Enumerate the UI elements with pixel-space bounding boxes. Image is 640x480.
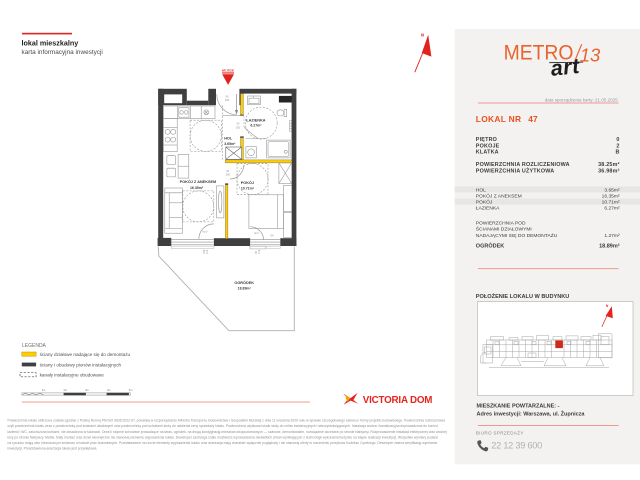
svg-text:kanały instalacyjne obudowane: kanały instalacyjne obudowane — [40, 373, 105, 378]
svg-text:LOKAL NR: LOKAL NR — [476, 114, 522, 124]
svg-text:POKÓJ Z ANEKSEM: POKÓJ Z ANEKSEM — [180, 179, 217, 184]
svg-text:6.27m²: 6.27m² — [250, 124, 262, 128]
svg-text:22 12 39 600: 22 12 39 600 — [491, 440, 542, 450]
svg-text:KLATKA: KLATKA — [476, 150, 499, 156]
svg-text:POWIERZCHNIA ROZLICZENIOWA: POWIERZCHNIA ROZLICZENIOWA — [476, 162, 570, 168]
svg-text:Powierzchnia lokalu obliczona: Powierzchnia lokalu obliczona została zg… — [8, 419, 446, 423]
svg-text:czyli powierzchnia lokalu wraz: czyli powierzchnia lokalu wraz z powierz… — [8, 424, 439, 428]
svg-text:lokal mieszkalny: lokal mieszkalny — [22, 39, 79, 48]
svg-text:BIURO SPRZEDAŻY: BIURO SPRZEDAŻY — [476, 430, 524, 436]
svg-text:Adres inwestycji: Warszawa, ul: Adres inwestycji: Warszawa, ul. Żupnicza — [477, 411, 586, 418]
svg-text:16.35m²: 16.35m² — [602, 193, 620, 199]
svg-text:4m: 4m — [107, 388, 111, 392]
svg-text:LEGENDA: LEGENDA — [22, 343, 47, 349]
svg-text:5m: 5m — [129, 388, 133, 392]
svg-text:2m: 2m — [63, 388, 67, 392]
svg-text:47: 47 — [528, 114, 538, 124]
svg-text:inwestycji. Przedstawiona aran: inwestycji. Przedstawiona aranżacja loka… — [8, 447, 98, 451]
svg-text:36.98m²: 36.98m² — [598, 169, 619, 175]
svg-text:B: B — [616, 150, 620, 156]
svg-text:MIESZKANIE POWTARZALNE: -: MIESZKANIE POWTARZALNE: - — [477, 403, 560, 409]
svg-text:na rysunku mogą ulec nieznaczn: na rysunku mogą ulec nieznacznym zmianom… — [8, 441, 438, 445]
svg-text:200: 200 — [236, 125, 241, 129]
svg-text:ściany i obudowy pionów instal: ściany i obudowy pionów instalacyjnych — [40, 362, 122, 367]
svg-text:ŁAZIENKA: ŁAZIENKA — [246, 118, 265, 122]
svg-text:10.71m²: 10.71m² — [241, 186, 255, 190]
svg-text:łazienki i WC, zakończona kork: łazienki i WC, zakończona korkami, nie o… — [8, 430, 447, 434]
svg-text:PIĘTRO: PIĘTRO — [476, 137, 497, 143]
svg-text:OK: OK — [270, 234, 274, 237]
svg-text:200: 200 — [226, 173, 231, 177]
svg-text:hp 0: hp 0 — [203, 230, 208, 233]
svg-text:POWIERZCHNIA POD: POWIERZCHNIA POD — [476, 221, 526, 227]
svg-text:3m: 3m — [85, 388, 89, 392]
svg-text:VICTORIA DOM: VICTORIA DOM — [363, 395, 432, 406]
svg-text:POKÓJ Z ANEKSEM: POKÓJ Z ANEKSEM — [476, 192, 522, 199]
svg-text:6.27m²: 6.27m² — [604, 206, 620, 212]
svg-text:data sporządzenia karty: 21.05: data sporządzenia karty: 21.05.2025 — [545, 98, 618, 103]
svg-text:18.89m²: 18.89m² — [238, 287, 252, 291]
svg-text:210: 210 — [206, 249, 209, 254]
svg-text:1.27m²: 1.27m² — [604, 233, 620, 239]
svg-text:POKÓJ: POKÓJ — [476, 199, 493, 206]
svg-text:3.65m²: 3.65m² — [604, 187, 620, 193]
svg-text:POKÓJ: POKÓJ — [241, 180, 254, 185]
svg-text:ŁAZIENKA: ŁAZIENKA — [476, 206, 500, 212]
svg-text:NADAJĄCYMI SIĘ DO DEMONTAŻU: NADAJĄCYMI SIĘ DO DEMONTAŻU — [476, 232, 558, 239]
svg-text:1m: 1m — [42, 388, 46, 392]
svg-text:OGRÓDEK: OGRÓDEK — [476, 242, 504, 250]
svg-text:HOL: HOL — [476, 187, 486, 193]
svg-text:karta informacyjna inwestycji: karta informacyjna inwestycji — [22, 49, 103, 56]
svg-text:POWIERZCHNIA UŻYTKOWA: POWIERZCHNIA UŻYTKOWA — [476, 168, 555, 175]
svg-text:POŁOŻENIE LOKALU W BUDYNKU: POŁOŻENIE LOKALU W BUDYNKU — [476, 293, 570, 300]
svg-text:210: 210 — [258, 249, 261, 254]
svg-text:WEJŚCIE: WEJŚCIE — [222, 68, 235, 73]
svg-text:hp 0: hp 0 — [254, 232, 259, 235]
svg-text:OGRÓDEK: OGRÓDEK — [234, 280, 254, 285]
svg-text:art: art — [550, 54, 582, 81]
svg-text:2: 2 — [616, 143, 619, 149]
svg-text:ściany działowe nadające się d: ściany działowe nadające się do demontaż… — [40, 352, 131, 357]
svg-text:3.65m²: 3.65m² — [224, 142, 236, 146]
svg-text:16.35m²: 16.35m² — [190, 186, 204, 190]
svg-text:200: 200 — [225, 98, 230, 102]
svg-text:HOL: HOL — [224, 137, 233, 141]
svg-text:0: 0 — [616, 137, 619, 143]
svg-text:38.25m²: 38.25m² — [598, 162, 619, 168]
svg-text:leży po stronie Nabywcy. Meble: leży po stronie Nabywcy. Meble, biały mo… — [8, 435, 439, 439]
svg-text:POKOJE: POKOJE — [476, 143, 500, 149]
svg-text:18.89m²: 18.89m² — [599, 243, 620, 250]
svg-text:10.71m²: 10.71m² — [602, 200, 620, 206]
